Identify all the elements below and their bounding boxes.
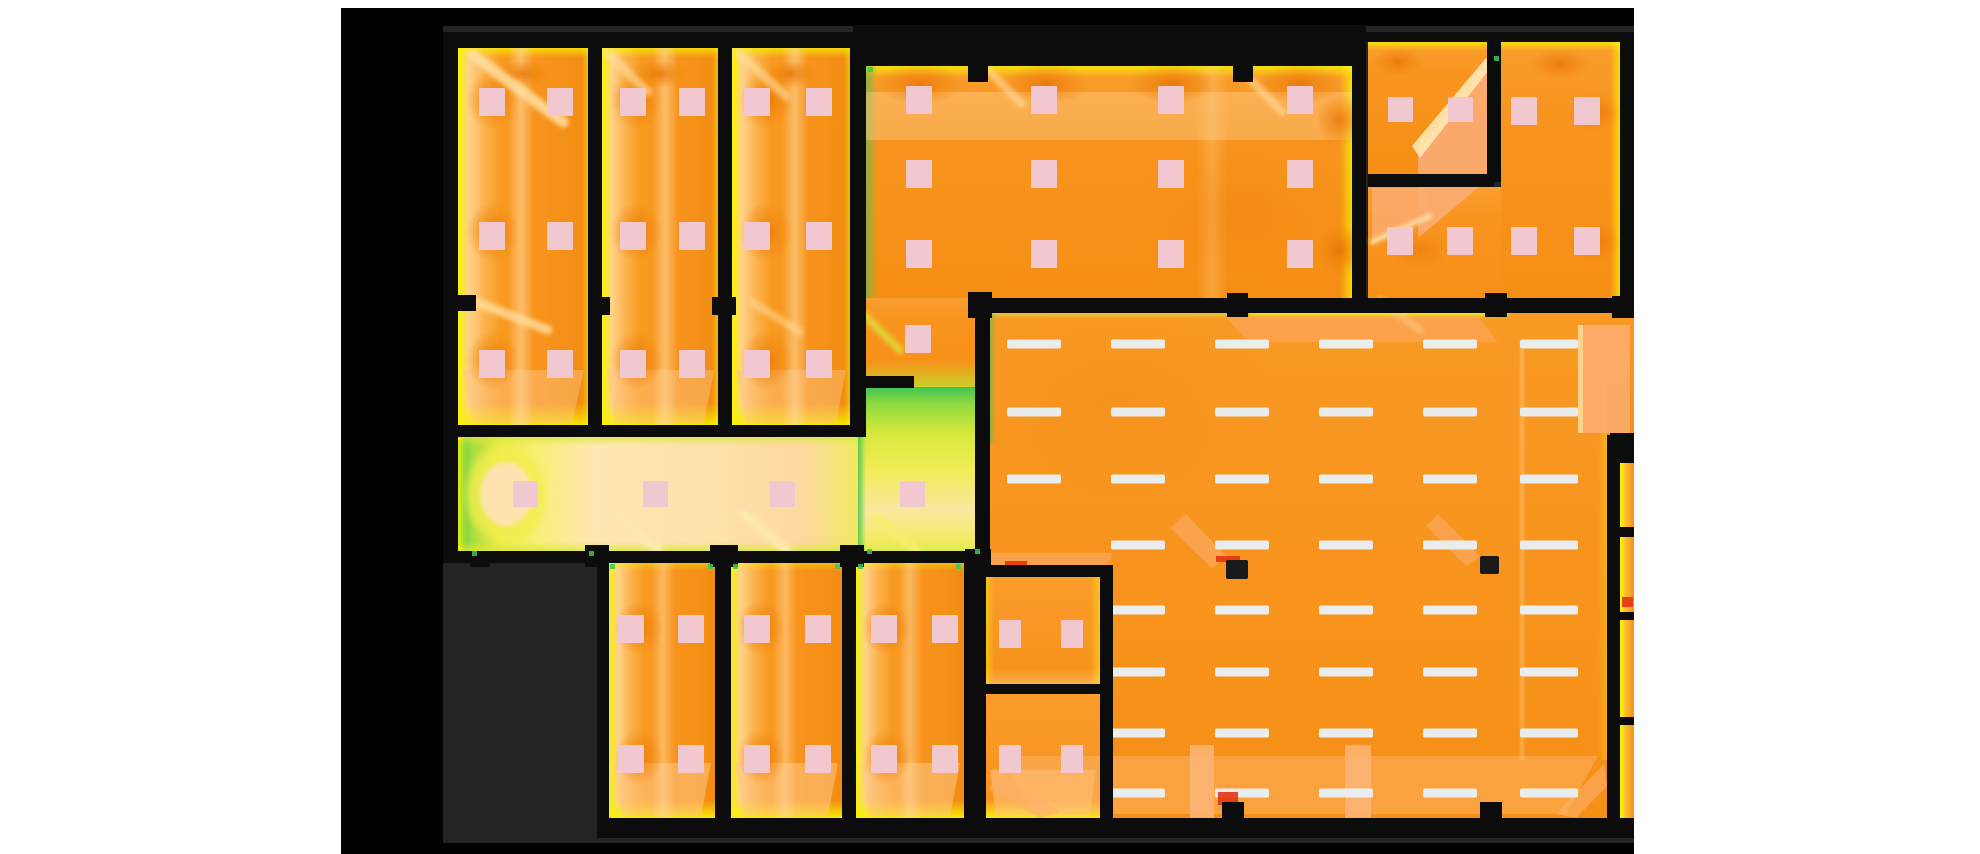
- edge-glow: [1090, 577, 1100, 684]
- desk-marker: [1031, 86, 1057, 114]
- desk-marker: [547, 222, 573, 250]
- desk-marker: [479, 350, 505, 378]
- parking-dash: [1520, 606, 1578, 615]
- door-gap-dot: [868, 67, 873, 72]
- wall-segment: [715, 563, 731, 818]
- lit-wall-face: [1345, 745, 1371, 818]
- wall-segment: [1227, 293, 1248, 317]
- parking-dash: [1007, 340, 1061, 349]
- wall-segment: [597, 563, 609, 818]
- desk-marker: [1511, 97, 1537, 125]
- door-gap-dot: [733, 564, 738, 569]
- edge-glow: [1620, 723, 1625, 818]
- hotspot-blob: [1530, 49, 1590, 79]
- parking-dash: [1215, 475, 1269, 484]
- door-gap-dot: [589, 551, 594, 556]
- wall-segment: [986, 565, 1113, 577]
- desk-marker: [744, 350, 770, 378]
- structural-column: [1480, 556, 1499, 574]
- room-lobby-green: [858, 387, 977, 553]
- lit-wall-face: [1190, 745, 1214, 818]
- light-band: [651, 563, 675, 818]
- wall-segment: [712, 297, 736, 315]
- parking-dash: [1520, 340, 1578, 349]
- desk-marker: [1031, 160, 1057, 188]
- door-gap-dot: [858, 564, 863, 569]
- parking-dash: [1423, 475, 1477, 484]
- desk-marker: [1031, 240, 1057, 268]
- desk-marker: [1061, 745, 1083, 773]
- desk-marker: [999, 620, 1021, 648]
- desk-marker: [679, 222, 705, 250]
- parking-dash: [1319, 606, 1373, 615]
- desk-marker: [618, 615, 644, 643]
- illuminance-floorplan: [0, 0, 1980, 854]
- desk-marker: [744, 222, 770, 250]
- red-hotspot: [1622, 597, 1633, 607]
- desk-marker: [1511, 227, 1537, 255]
- parking-dash: [1111, 729, 1165, 738]
- parking-dash: [1215, 541, 1269, 550]
- parking-dash: [1007, 408, 1061, 417]
- wall-segment: [968, 292, 992, 318]
- desk-marker: [679, 350, 705, 378]
- lit-wall-face: [998, 756, 1598, 814]
- parking-dash: [1319, 340, 1373, 349]
- wall-segment: [443, 32, 866, 48]
- desk-marker: [906, 86, 932, 114]
- desk-marker: [1158, 160, 1184, 188]
- hotspot-blob: [960, 300, 1280, 500]
- parking-dash: [1423, 541, 1477, 550]
- parking-dash: [1423, 789, 1477, 798]
- room-corner-room-east: [1501, 42, 1620, 313]
- wall-segment: [1620, 527, 1634, 537]
- desk-marker: [1574, 227, 1600, 255]
- door-gap-dot: [867, 549, 872, 554]
- wall-segment: [710, 545, 738, 567]
- parking-dash: [1520, 789, 1578, 798]
- screenshot-stage: [0, 0, 1980, 854]
- desk-marker: [806, 88, 832, 116]
- wall-segment: [1620, 717, 1634, 725]
- desk-marker: [618, 745, 644, 773]
- door-gap-dot: [708, 564, 713, 569]
- wall-segment: [1222, 802, 1244, 820]
- desk-marker: [1387, 227, 1413, 255]
- desk-marker: [1158, 86, 1184, 114]
- desk-marker: [900, 481, 925, 507]
- edge-glow: [458, 437, 467, 551]
- desk-marker: [678, 745, 704, 773]
- door-gap-dot: [472, 551, 477, 556]
- parking-dash: [1007, 475, 1061, 484]
- parking-dash: [1423, 729, 1477, 738]
- lit-wall-face: [1578, 325, 1583, 433]
- parking-dash: [1319, 408, 1373, 417]
- desk-marker: [805, 745, 831, 773]
- edge-glow: [844, 48, 850, 425]
- wall-segment: [1487, 42, 1501, 182]
- structural-column: [1226, 560, 1248, 579]
- desk-marker: [770, 481, 795, 507]
- desk-marker: [871, 745, 897, 773]
- parking-dash: [1520, 408, 1578, 417]
- parking-dash: [1423, 408, 1477, 417]
- door-gap-dot: [975, 549, 980, 554]
- parking-dash: [1111, 541, 1165, 550]
- wall-segment: [852, 376, 914, 388]
- desk-marker: [806, 222, 832, 250]
- door-gap-dot: [835, 564, 840, 569]
- desk-marker: [932, 745, 958, 773]
- wall-segment: [588, 48, 602, 437]
- parking-dash: [1111, 475, 1165, 484]
- wall-segment: [850, 297, 866, 315]
- wall-segment: [853, 25, 1365, 66]
- wall-segment: [986, 684, 1113, 694]
- door-gap-dot: [956, 564, 961, 569]
- desk-marker: [805, 615, 831, 643]
- edge-glow: [1620, 463, 1625, 527]
- desk-marker: [1388, 97, 1413, 122]
- light-band: [898, 563, 922, 818]
- parking-dash: [1111, 408, 1165, 417]
- door-gap-dot: [1494, 56, 1499, 61]
- desk-marker: [744, 615, 770, 643]
- wall-segment: [1607, 435, 1620, 818]
- parking-dash: [1423, 606, 1477, 615]
- wall-segment: [968, 66, 988, 82]
- wall-segment: [718, 48, 732, 437]
- desk-marker: [871, 615, 897, 643]
- wall-segment: [443, 425, 866, 437]
- edge-glow: [1610, 42, 1620, 313]
- wall-segment: [975, 313, 990, 560]
- parking-dash: [1319, 729, 1373, 738]
- wall-segment: [1352, 25, 1366, 298]
- desk-marker: [906, 160, 932, 188]
- desk-marker: [479, 88, 505, 116]
- edge-glow: [712, 48, 718, 425]
- parking-dash: [1319, 789, 1373, 798]
- wall-segment: [1233, 66, 1253, 82]
- wall-segment: [1620, 612, 1634, 620]
- edge-glow: [986, 577, 994, 684]
- desk-marker: [1287, 240, 1313, 268]
- desk-marker: [905, 325, 931, 353]
- desk-marker: [1447, 227, 1473, 255]
- desk-marker: [620, 88, 646, 116]
- desk-marker: [513, 481, 538, 507]
- parking-dash: [1520, 541, 1578, 550]
- parking-dash: [1520, 475, 1578, 484]
- desk-marker: [679, 88, 705, 116]
- parking-dash: [1319, 668, 1373, 677]
- wall-segment: [840, 545, 864, 567]
- light-band: [773, 563, 797, 818]
- wall-segment: [842, 563, 856, 818]
- desk-marker: [620, 350, 646, 378]
- desk-marker: [1574, 97, 1600, 125]
- desk-marker: [806, 350, 832, 378]
- parking-dash: [1111, 668, 1165, 677]
- desk-marker: [1287, 160, 1313, 188]
- wall-segment: [443, 32, 458, 563]
- wall-segment: [1100, 565, 1113, 818]
- wall-segment: [1610, 433, 1634, 459]
- wall-segment: [1485, 293, 1507, 317]
- parking-dash: [1423, 668, 1477, 677]
- parking-dash: [1215, 340, 1269, 349]
- wall-segment: [458, 295, 476, 311]
- desk-marker: [620, 222, 646, 250]
- desk-marker: [643, 481, 668, 507]
- desk-marker: [999, 745, 1021, 773]
- wall-segment: [1352, 32, 1634, 42]
- light-band: [1518, 340, 1526, 760]
- desk-marker: [479, 222, 505, 250]
- parking-dash: [1520, 729, 1578, 738]
- parking-dash: [1215, 729, 1269, 738]
- wall-segment: [588, 297, 610, 315]
- hotspot-blob: [1120, 140, 1360, 280]
- parking-dash: [1423, 340, 1477, 349]
- parking-dash: [1215, 408, 1269, 417]
- wall-segment: [1480, 802, 1502, 820]
- wall-segment: [1620, 457, 1634, 463]
- hotspot-blob: [1372, 48, 1424, 76]
- lit-wall-face: [1225, 316, 1498, 342]
- parking-dash: [1111, 606, 1165, 615]
- wall-segment: [975, 298, 1634, 313]
- desk-marker: [932, 615, 958, 643]
- wall-segment: [597, 818, 1634, 838]
- wall-segment: [585, 545, 609, 567]
- wall-segment: [964, 558, 986, 818]
- parking-dash: [1319, 475, 1373, 484]
- desk-marker: [744, 745, 770, 773]
- parking-dash: [1215, 606, 1269, 615]
- parking-dash: [1520, 668, 1578, 677]
- edge-glow: [1620, 620, 1625, 717]
- edge-glow: [582, 48, 588, 425]
- desk-marker: [1448, 97, 1473, 122]
- desk-marker: [1287, 86, 1313, 114]
- desk-marker: [547, 88, 573, 116]
- wall-segment: [1612, 296, 1634, 318]
- lit-wall-face: [1583, 325, 1630, 433]
- wall-segment: [1368, 174, 1494, 187]
- parking-dash: [1215, 668, 1269, 677]
- desk-marker: [678, 615, 704, 643]
- desk-marker: [744, 88, 770, 116]
- desk-marker: [1158, 240, 1184, 268]
- desk-marker: [906, 240, 932, 268]
- wall-segment: [1620, 32, 1634, 313]
- parking-dash: [1111, 340, 1165, 349]
- parking-dash: [1319, 541, 1373, 550]
- door-gap-dot: [610, 564, 615, 569]
- edge-glow: [458, 437, 866, 446]
- parking-dash: [1111, 789, 1165, 798]
- desk-marker: [547, 350, 573, 378]
- desk-marker: [1061, 620, 1083, 648]
